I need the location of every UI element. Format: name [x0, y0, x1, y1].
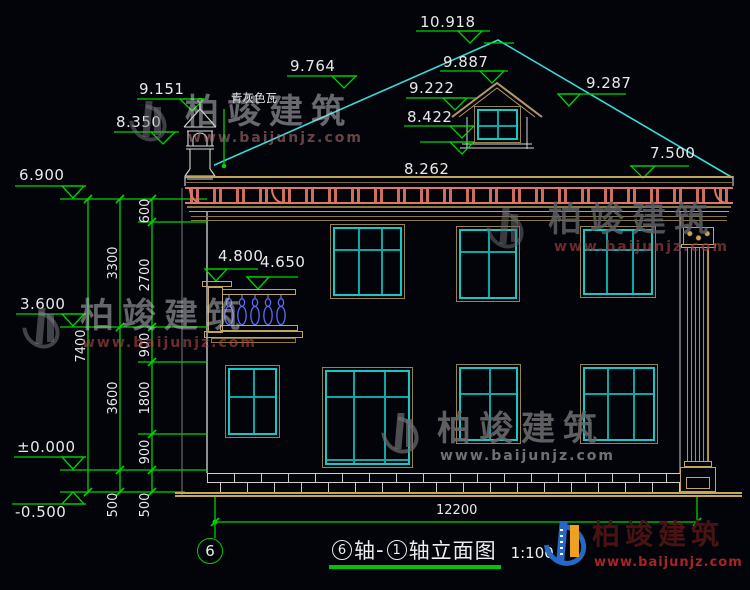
dim-2700: 2700: [139, 252, 153, 298]
title-suffix: 轴立面图: [409, 535, 497, 565]
level-roof-edge-right: 7.500: [650, 146, 695, 161]
pilaster-pedestal-panel: [686, 477, 710, 489]
brand-url: www.baijunjz.com: [594, 556, 743, 569]
title-dash: -: [376, 538, 385, 562]
watermark-url: www.baijunjz.com: [440, 449, 615, 463]
window-transom: [335, 249, 400, 251]
level-grade: -0.500: [15, 505, 66, 520]
brand-logo-bar-orange: [570, 525, 579, 557]
watermark-logo-bar: [406, 419, 413, 447]
watermark-logo-bar: [154, 107, 161, 135]
elevation-drawing-canvas: 10.918 9.887 9.222 9.287 8.422 8.262 7.5…: [0, 0, 750, 590]
watermark-logo-icon: [488, 204, 534, 254]
window-1f-1: [225, 365, 280, 438]
level-roof-left: 9.764: [290, 59, 335, 74]
dim-900-b: 900: [139, 429, 153, 475]
watermark-url: www.baijunjz.com: [554, 240, 729, 254]
dim-1800: 1800: [139, 375, 153, 421]
window-mullion: [381, 229, 383, 294]
window-mullion: [353, 372, 355, 463]
watermark-logo-icon: [131, 97, 177, 149]
level-roof-right: 9.287: [586, 76, 631, 91]
watermark-logo-bar: [47, 314, 54, 342]
title-underline: [329, 565, 501, 569]
axis-bubble-label: 6: [205, 542, 215, 560]
level-floor1: ±0.000: [17, 440, 76, 455]
level-chimney-top: 9.151: [139, 82, 184, 97]
dim-500-b: 500: [107, 482, 121, 528]
dim-12200: 12200: [436, 504, 477, 517]
watermark-name: 柏竣建筑: [80, 299, 248, 333]
window-2f-1: [330, 224, 405, 299]
title-axis-start-bubble: 6: [332, 540, 352, 560]
level-dormer-ridge: 9.887: [443, 55, 488, 70]
stone-plinth-row1: [207, 473, 680, 483]
window-dormer: [474, 106, 521, 143]
pilaster-shaft: [687, 248, 709, 461]
brand-name: 柏竣建筑: [592, 521, 724, 549]
watermark-url: www.baijunjz.com: [188, 131, 363, 145]
window-transom: [327, 396, 408, 398]
window-transom: [585, 393, 653, 395]
level-dormer-sill: 8.422: [407, 110, 452, 125]
watermark-name: 柏竣建筑: [185, 95, 353, 129]
window-mullion: [358, 229, 360, 294]
brand-logo-windows: [560, 525, 563, 555]
watermark-name: 柏竣建筑: [548, 203, 716, 237]
dim-600: 600: [139, 188, 153, 234]
axis-bubble-6: 6: [197, 538, 223, 564]
balcony-rail-top: [222, 289, 296, 295]
watermark-logo-bar: [511, 214, 518, 242]
title-axis-end-bubble: 1: [387, 540, 407, 560]
window-glass: [333, 227, 402, 296]
level-dormer-eave-left: 9.222: [409, 81, 454, 96]
window-mullion: [607, 369, 609, 439]
window-transom: [461, 393, 516, 395]
eave-fascia-bottom: [185, 182, 733, 183]
dim-500-a: 500: [139, 482, 153, 528]
window-mullion: [633, 369, 635, 439]
window-mullion: [253, 370, 255, 433]
watermark-url: www.baijunjz.com: [82, 336, 257, 350]
eave-fascia-top: [185, 176, 733, 178]
level-eave-top: 8.262: [404, 162, 449, 177]
drawing-title: 6 轴 - 1 轴立面图 1:100: [330, 535, 554, 565]
level-balcony-rail: 4.650: [260, 255, 305, 270]
ground-line: [175, 492, 742, 497]
title-unit-a: 轴: [354, 535, 376, 565]
watermark-logo-icon: [24, 304, 68, 360]
dim-3300: 3300: [107, 240, 121, 286]
window-transom: [479, 125, 516, 127]
dim-3600: 3600: [107, 375, 121, 421]
level-balcony-cap: 4.800: [218, 249, 263, 264]
window-transom: [230, 396, 275, 398]
brand-logo-icon: [545, 515, 591, 577]
watermark-name: 柏竣建筑: [437, 412, 605, 446]
watermark-logo-icon: [383, 409, 429, 461]
level-ridge: 10.918: [420, 15, 476, 30]
level-main-eave: 6.900: [19, 168, 64, 183]
